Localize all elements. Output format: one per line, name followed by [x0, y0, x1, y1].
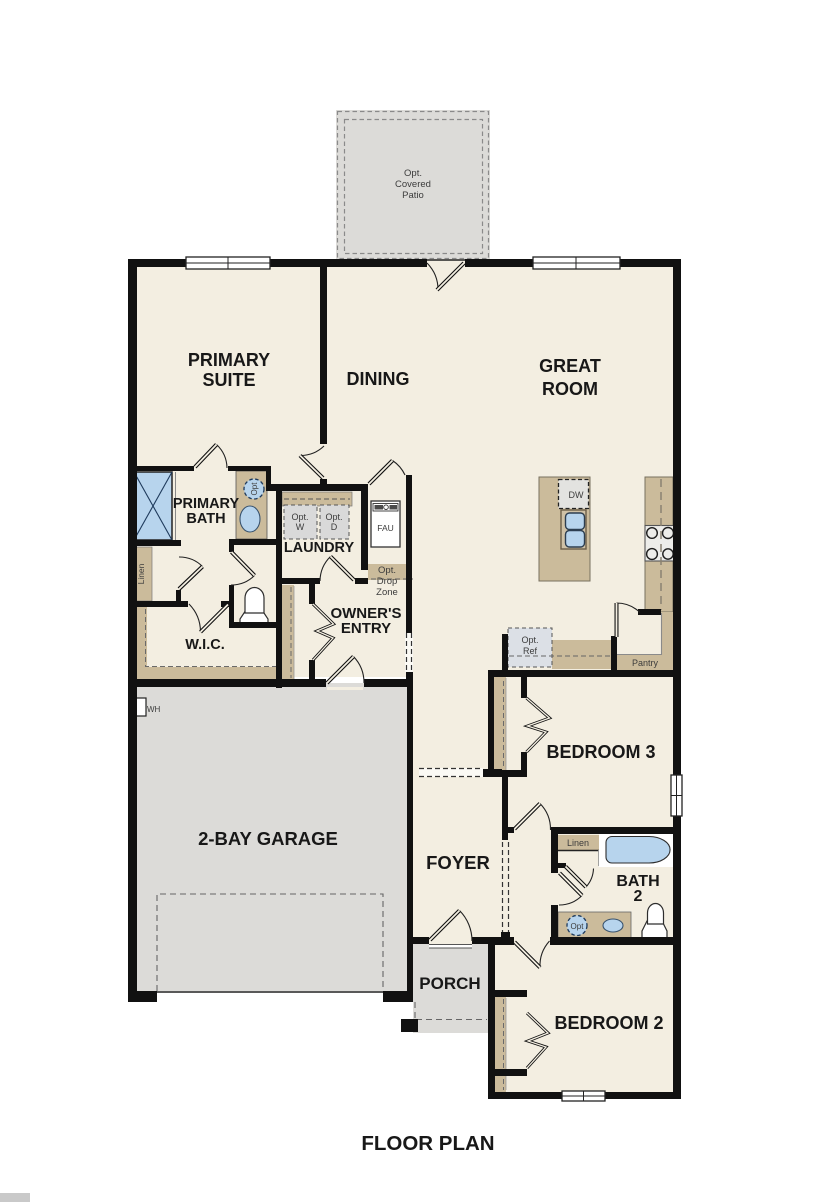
svg-text:FLOOR PLAN: FLOOR PLAN — [361, 1132, 494, 1155]
svg-text:LAUNDRY: LAUNDRY — [284, 540, 355, 556]
svg-text:Drop: Drop — [377, 576, 398, 587]
svg-text:FOYER: FOYER — [426, 852, 490, 873]
svg-text:Opt.: Opt. — [291, 512, 308, 522]
svg-text:Opt.: Opt. — [404, 168, 422, 179]
svg-text:SUITE: SUITE — [202, 370, 255, 390]
svg-text:2-BAY GARAGE: 2-BAY GARAGE — [198, 828, 338, 849]
svg-text:BEDROOM 2: BEDROOM 2 — [554, 1013, 663, 1033]
svg-text:PORCH: PORCH — [419, 974, 480, 993]
svg-text:DW: DW — [569, 490, 584, 500]
svg-text:Opt.: Opt. — [521, 635, 538, 645]
svg-text:Opt: Opt — [571, 922, 585, 931]
svg-text:DINING: DINING — [347, 369, 410, 389]
svg-text:Opt.: Opt. — [378, 565, 396, 576]
svg-text:FAU: FAU — [377, 523, 394, 533]
svg-text:Opt.: Opt. — [325, 512, 342, 522]
svg-text:2: 2 — [634, 888, 643, 905]
svg-text:PRIMARY: PRIMARY — [173, 496, 240, 512]
svg-text:Patio: Patio — [402, 190, 424, 201]
svg-text:D: D — [331, 522, 338, 532]
svg-text:BEDROOM 3: BEDROOM 3 — [546, 742, 655, 762]
svg-text:Opt: Opt — [250, 482, 259, 496]
svg-text:W.I.C.: W.I.C. — [185, 637, 224, 653]
svg-text:Linen: Linen — [567, 838, 589, 848]
svg-text:Zone: Zone — [376, 587, 398, 598]
svg-text:Pantry: Pantry — [632, 658, 659, 668]
svg-text:ROOM: ROOM — [542, 379, 598, 399]
svg-text:BATH: BATH — [186, 511, 225, 527]
svg-text:ENTRY: ENTRY — [341, 620, 391, 637]
svg-text:Ref: Ref — [523, 646, 538, 656]
svg-text:WH: WH — [147, 705, 161, 714]
svg-text:PRIMARY: PRIMARY — [188, 350, 270, 370]
svg-text:W: W — [296, 522, 305, 532]
svg-text:Covered: Covered — [395, 179, 431, 190]
svg-text:GREAT: GREAT — [539, 356, 601, 376]
svg-text:Linen: Linen — [136, 563, 146, 584]
